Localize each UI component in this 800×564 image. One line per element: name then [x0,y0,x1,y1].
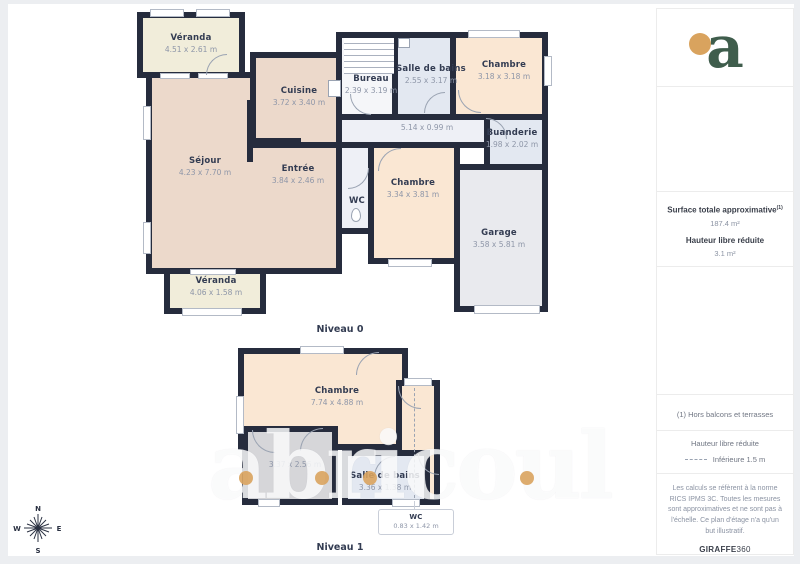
dashed-line-icon [685,459,707,460]
window [182,308,242,316]
room-name: Chambre [459,60,549,70]
room-label-veranda-top: Véranda 4.51 x 2.61 m [141,33,241,54]
room-dims: 3.84 x 2.46 m [253,176,343,185]
window [468,30,520,38]
legal-section: Les calculs se réfèrent à la norme RICS … [657,473,793,554]
toilet-icon [351,208,361,222]
window [300,346,344,354]
legend-row: Inférieure 1.5 m [657,455,793,464]
room-name: Chambre [368,178,458,188]
floor-label-niveau-0: Niveau 0 [290,324,390,335]
logo-letter: a [705,19,745,75]
floorplan-page: Véranda 4.51 x 2.61 m Cuisine 3.72 x 3.4… [0,0,800,564]
height-title: Hauteur libre réduite [657,236,793,245]
room-label-chambre-top: Chambre 3.18 x 3.18 m [459,60,549,81]
compass-e: E [57,525,62,533]
brand-logo: a [705,19,745,79]
watermark-dot [363,471,377,485]
room-label-veranda-bottom: Véranda 4.06 x 1.58 m [171,276,261,297]
window [392,499,420,507]
room-name: WC [379,513,453,521]
footnote-section: (1) Hors balcons et terrasses [657,394,793,431]
spacer-section [657,266,793,394]
room-name: Séjour [160,156,250,166]
room-label-entree: Entrée 3.84 x 2.46 m [253,164,343,185]
legend-section: Hauteur libre réduite Inférieure 1.5 m [657,430,793,472]
legend-item: Inférieure 1.5 m [713,455,766,464]
wall-stub [247,138,301,144]
watermark-dot [315,471,329,485]
wc-callout: WC 0.83 x 1.42 m [378,509,454,535]
room-dims: 5.14 x 0.99 m [382,123,472,132]
brand-name: GIRAFFE [699,545,736,554]
room-name: Véranda [171,276,261,286]
compass-w: W [13,525,21,533]
room-label-dressing-1: 3.37 x 2.56 m [250,460,340,469]
spacer-section [657,86,793,191]
compass-icon: N S W E [10,500,66,558]
room-label-garage: Garage 3.58 x 5.81 m [454,228,544,249]
room-dims: 2.39 x 3.19 m [336,86,406,95]
surface-value: 187.4 m² [657,219,793,228]
room-label-chambre-1: Chambre 7.74 x 4.88 m [292,386,382,407]
room-label-salle-de-bains-1: Salle de bains 3.36 x 1.38 m [340,471,430,492]
giraffe360-brand: GIRAFFE360 [657,545,793,554]
legend-title: Hauteur libre réduite [657,439,793,448]
height-value: 3.1 m² [657,249,793,258]
room-dims: 3.72 x 3.40 m [254,98,344,107]
footnote-text: (1) Hors balcons et terrasses [657,410,793,419]
room-dims: 3.58 x 5.81 m [454,240,544,249]
watermark-dot [239,471,253,485]
corridor-dims: 5.14 x 0.99 m [382,123,472,132]
compass-s: S [35,547,40,555]
room-dims: 1.98 x 2.02 m [467,140,557,149]
brand-suffix: 360 [736,545,750,554]
room-dims: 4.23 x 7.70 m [160,168,250,177]
surface-title-text: Surface totale approximative [667,206,776,215]
window [404,378,432,386]
watermark-dot [520,471,534,485]
room-name: Chambre [292,386,382,396]
logo-section: a [657,9,793,86]
window [143,106,151,140]
surface-title: Surface totale approximative(1) [657,205,793,215]
room-label-chambre-mid: Chambre 3.34 x 3.81 m [368,178,458,199]
room-dims: 3.34 x 3.81 m [368,190,458,199]
info-sidebar: a Surface totale approximative(1) 187.4 … [656,8,794,555]
wall-stub [247,100,253,162]
room-dims: 0.83 x 1.42 m [379,522,453,530]
surface-footnote-marker: (1) [777,205,783,211]
floor-label-niveau-1: Niveau 1 [290,542,390,553]
window [190,269,236,275]
garage-door [474,305,540,314]
surface-section: Surface totale approximative(1) 187.4 m²… [657,191,793,266]
window [196,9,230,17]
room-label-sejour: Séjour 4.23 x 7.70 m [160,156,250,177]
callout-leader [414,501,415,509]
window [388,259,432,267]
room-name: Véranda [141,33,241,43]
window [160,73,190,79]
compass-n: N [35,505,41,513]
room-name: Garage [454,228,544,238]
room-label-buanderie: Buanderie 1.98 x 2.02 m [467,128,557,149]
room-name: Salle de bains [340,471,430,481]
room-dims: 3.36 x 1.38 m [340,483,430,492]
room-name: Buanderie [467,128,557,138]
sink-icon [398,38,410,48]
room-name: Cuisine [254,86,344,96]
window [143,222,151,254]
room-dims: 4.06 x 1.58 m [171,288,261,297]
legal-text: Les calculs se réfèrent à la norme RICS … [657,484,793,538]
room-dims: 3.37 x 2.56 m [250,460,340,469]
room-name: Entrée [253,164,343,174]
room-label-cuisine: Cuisine 3.72 x 3.40 m [254,86,344,107]
room-dims: 3.18 x 3.18 m [459,72,549,81]
room-dims: 4.51 x 2.61 m [141,45,241,54]
window [258,499,280,507]
window [236,396,244,434]
window [150,9,184,17]
room-dims: 7.74 x 4.88 m [292,398,382,407]
